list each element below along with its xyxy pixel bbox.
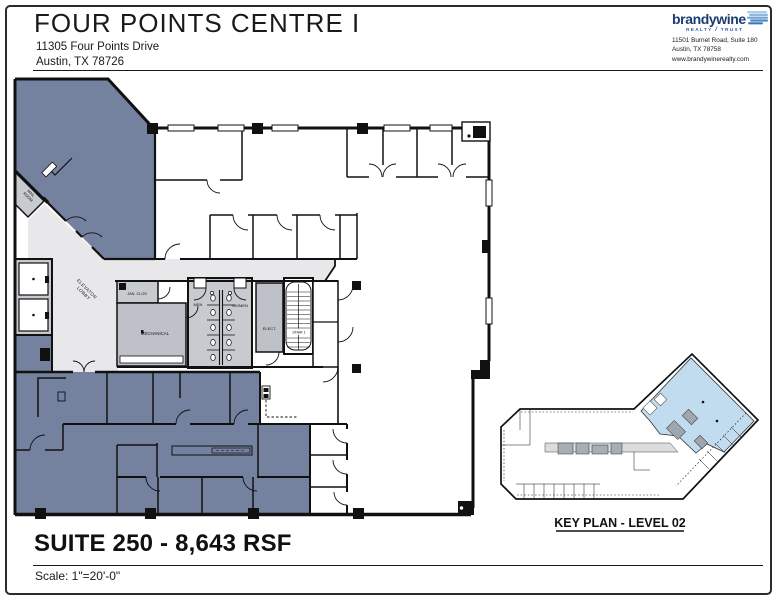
floor-plan-sheet: FOUR POINTS CENTRE I 11305 Four Points D… [0,0,777,600]
electrical-room [256,283,283,352]
scale-label: Scale: 1"=20'-0" [35,569,120,583]
core-side-rooms [313,281,338,367]
electrical-label: ELECT. [263,326,277,331]
mechanical-label: MECHANICAL [141,331,170,336]
women-label: WOMEN [232,303,248,308]
men-label: MEN [194,302,203,307]
stair-label: STAIR 1 [292,331,305,335]
jan-closet-label: JAN. CLOS [127,292,147,296]
floor-plan-drawing: MAIL ROOM ELEVATOR LOBBY JAN. CLOS MECHA… [0,0,777,600]
key-plan-caption: KEY PLAN - LEVEL 02 [554,516,686,530]
key-plan: KEY PLAN - LEVEL 02 [501,354,758,531]
footer-rule [33,565,763,566]
suite-title: SUITE 250 - 8,643 RSF [34,530,292,558]
